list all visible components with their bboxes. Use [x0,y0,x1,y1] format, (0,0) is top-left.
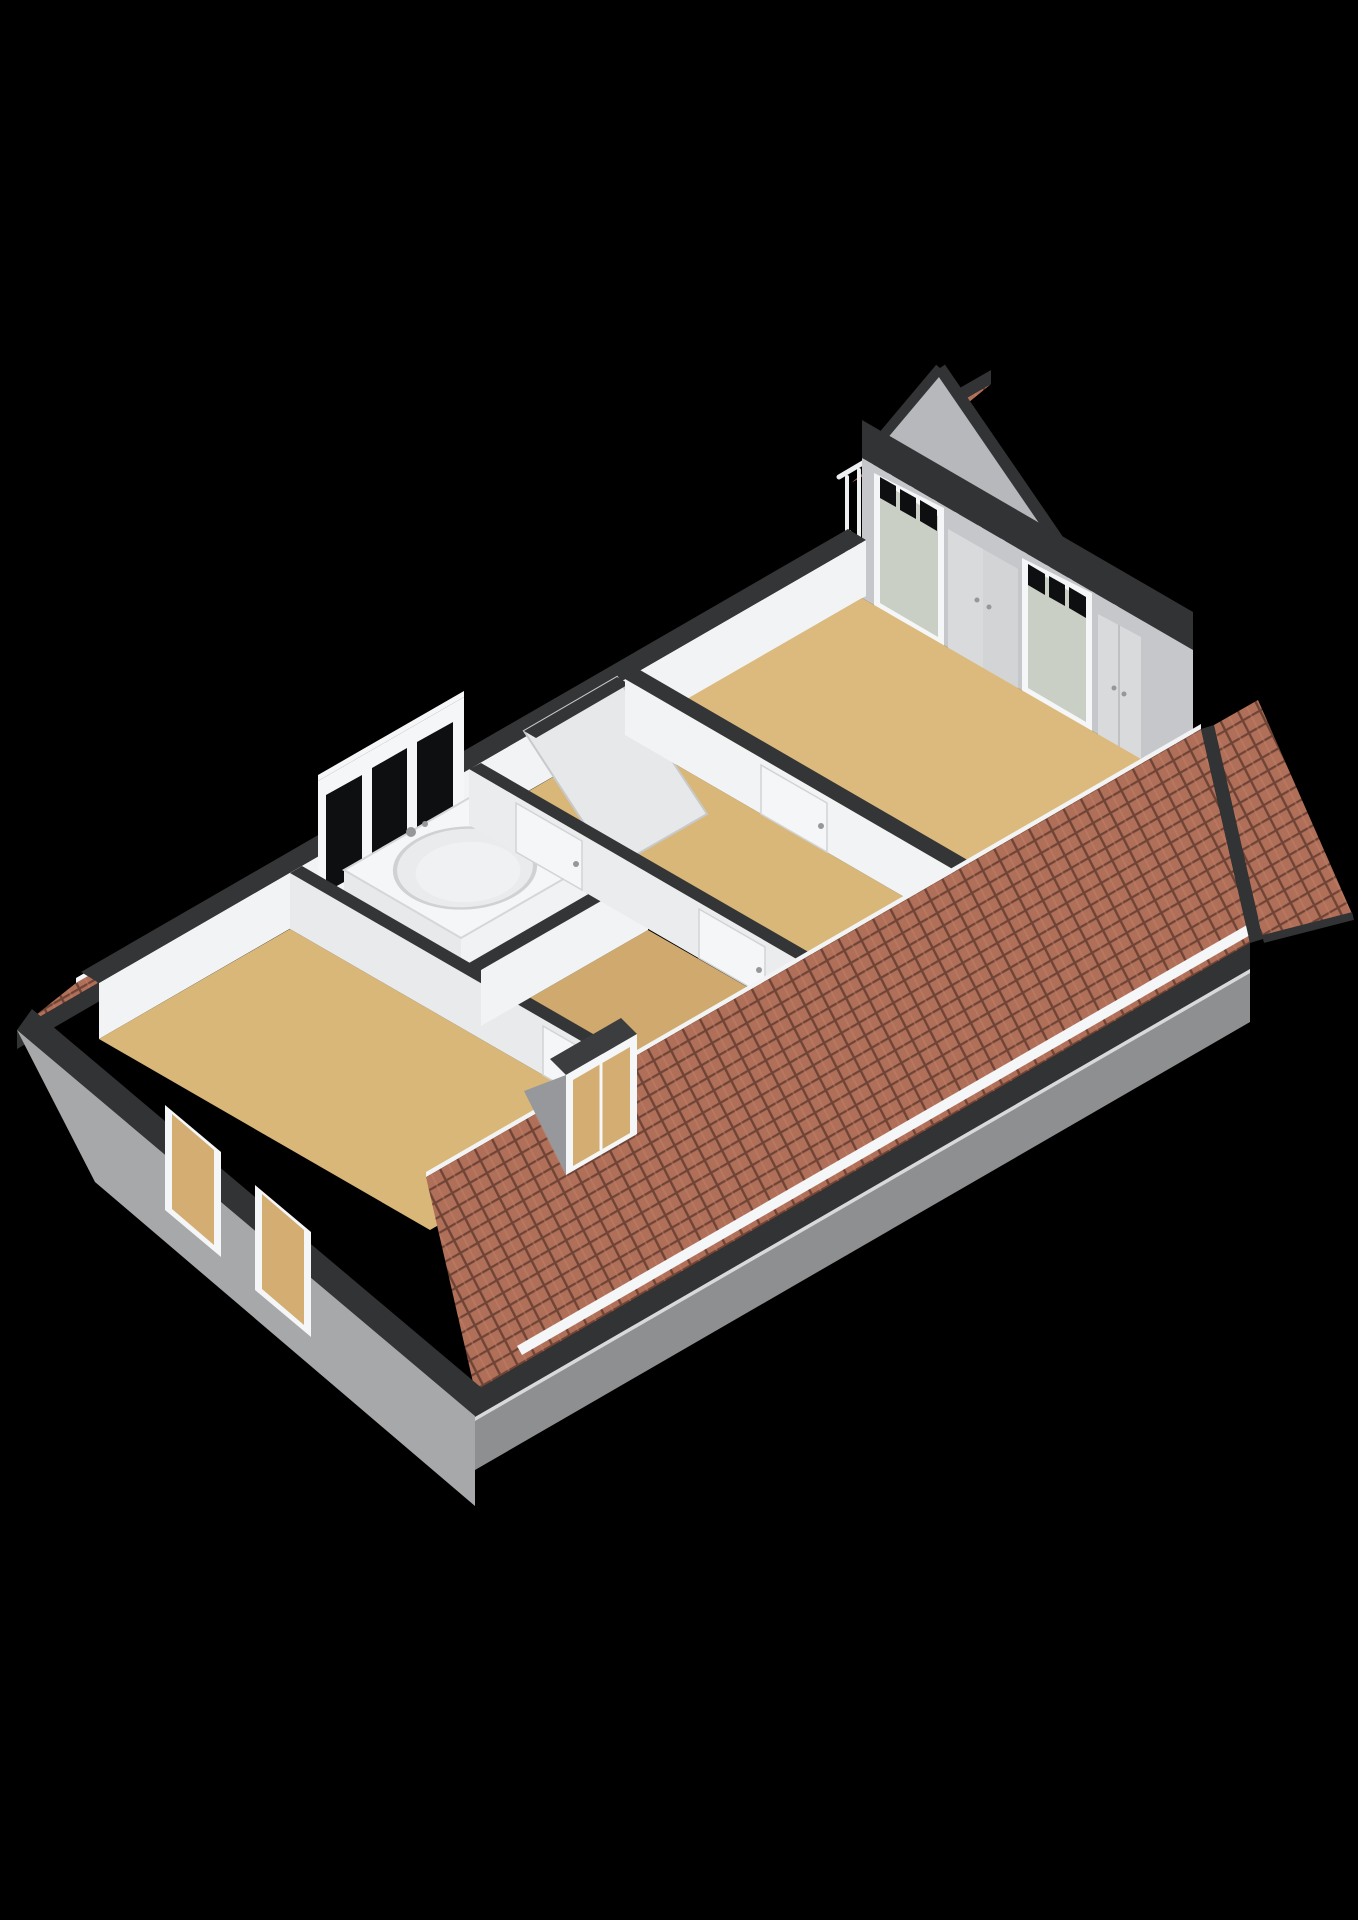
door-handle-icon [573,861,579,867]
floorplan-3d-stage [0,0,1358,1920]
faucet-icon [422,821,428,827]
closet-handle-icon [975,598,980,603]
door-handle-icon [818,823,824,829]
closet-handle-icon [1112,686,1117,691]
faucet-icon [406,827,416,837]
door-handle-icon [756,967,762,973]
closet-handle-icon [1122,692,1127,697]
floorplan-3d-render [0,0,1358,1920]
closet-handle-icon [987,605,992,610]
